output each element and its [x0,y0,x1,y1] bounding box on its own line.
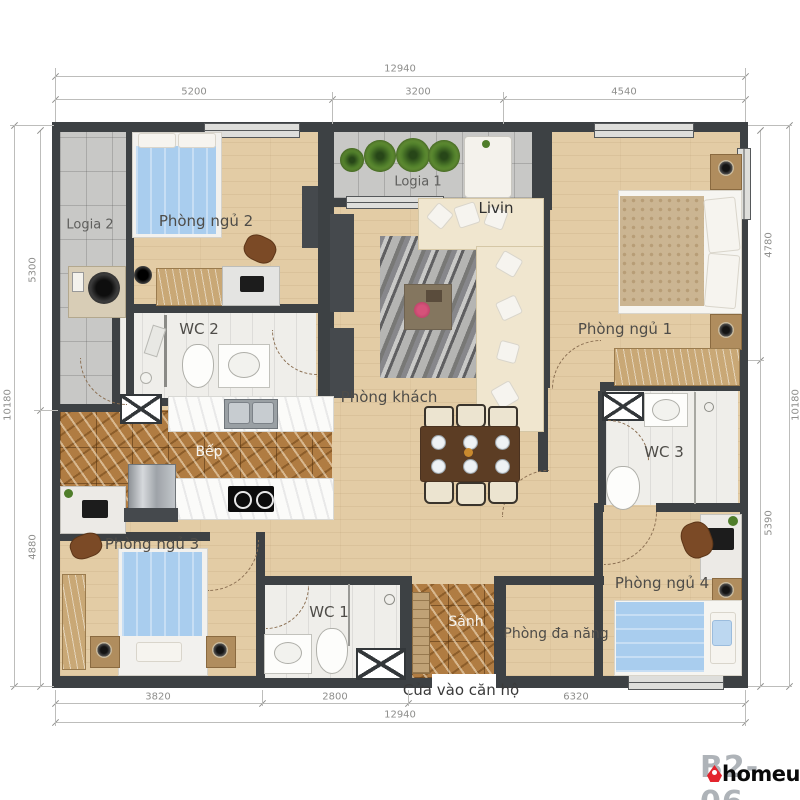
wall [594,503,604,512]
room-label-logia1: Logia 1 [394,175,441,190]
brand-name: homeup [722,762,800,786]
room-label-wc3: WC 3 [644,443,684,461]
floor-plan: Logia 2 Phòng ngủ 2 WC 2 Logia 1 Livin P… [0,0,800,800]
plate-icon [495,435,510,450]
tv-icon [330,214,354,312]
plant-icon [428,140,460,172]
dim-line [760,130,761,686]
dim-right-2: 5390 [764,508,775,537]
dim-line [55,99,745,100]
sink-bowl [228,352,260,378]
dim-top-2: 3200 [403,87,432,98]
flower-icon [414,302,430,318]
shower-icon [694,392,696,504]
room-label-living: Phòng khách [341,388,438,406]
dim-top-overall: 12940 [382,64,418,75]
lamp-icon [96,642,112,658]
dim-right-1: 4780 [764,230,775,259]
chair-icon [456,404,486,428]
wardrobe-icon [156,268,224,306]
pillow [712,620,732,646]
room-label-kitchen: Bếp [195,444,222,460]
dim-right-overall: 10180 [791,387,800,423]
pillow [703,196,740,253]
wall [594,512,603,680]
dim-left-2: 4880 [28,532,39,561]
burner-icon [234,491,252,509]
chair-icon [488,480,518,504]
wall [256,576,406,585]
dim-line [55,703,745,704]
dim-bottom-3: 6320 [561,692,590,703]
wall [656,503,740,512]
toilet-icon [316,628,348,674]
wardrobe-icon [62,574,86,670]
room-label-wc1: WC 1 [309,603,349,621]
burner-icon [256,491,274,509]
bed-duvet [122,552,202,636]
shaft-icon [356,648,406,680]
dim-line [55,722,745,723]
bed-duvet [616,602,704,672]
wardrobe-icon [614,348,740,386]
plate-icon [495,459,510,474]
brand-logo-dot [712,770,717,775]
shower-head-icon [704,402,714,412]
room-label-bedroom1: Phòng ngủ 1 [578,320,672,338]
plant-icon [364,140,396,172]
room-label-wc2: WC 2 [179,320,219,338]
room-label-hall: Sảnh [448,614,483,630]
plate-icon [431,459,446,474]
shower-head-icon [384,594,395,605]
plant-icon [64,489,73,498]
tray-icon [426,290,442,302]
laptop-icon [82,500,108,518]
detergent-bottle-icon [72,272,84,292]
washing-machine-icon [88,272,120,304]
entrance-label: Cửa vào căn hộ [403,681,519,699]
room-label-living-note: Livin [478,199,513,217]
tv-icon [124,508,178,522]
table-decor-icon [464,448,473,457]
toilet-icon [182,344,214,388]
pillow [178,133,216,148]
room-label-logia2: Logia 2 [66,218,113,233]
dim-left-overall: 10180 [3,387,14,423]
chair-icon [456,482,486,506]
sink-bowl [274,642,302,664]
plant-icon [396,138,430,172]
drain-icon [140,372,152,384]
plant-icon [728,516,738,526]
tv-icon [302,186,318,248]
dim-bottom-2: 2800 [320,692,349,703]
window-icon [594,123,694,138]
pillow [704,253,741,310]
dim-left-1: 5300 [28,255,39,284]
room-label-bedroom2: Phòng ngủ 2 [159,212,253,230]
speaker-icon [134,266,152,284]
chair-icon [424,480,454,504]
pillow [136,642,182,662]
laptop-icon [240,276,264,292]
plate-icon [463,459,478,474]
dim-bottom-1: 3820 [143,692,172,703]
sink-bowl [228,402,250,424]
sink-bowl [652,399,680,421]
dim-bottom-overall: 12940 [382,710,418,721]
plant-icon [340,148,364,172]
dim-line [55,76,745,77]
window-icon [628,675,724,690]
toilet-icon [606,466,640,510]
room-label-multipurpose: Phòng đa năng [503,626,608,642]
shower-icon [164,315,167,387]
plate-icon [431,435,446,450]
lamp-icon [718,582,734,598]
dim-top-3: 4540 [609,87,638,98]
pillow [138,133,176,148]
dim-top-1: 5200 [179,87,208,98]
room-label-bedroom3: Phòng ngủ 3 [105,535,199,553]
lamp-icon [718,160,734,176]
bed-duvet [620,196,704,306]
shoe-cabinet [412,592,430,674]
lamp-icon [718,322,734,338]
lamp-icon [212,642,228,658]
room-label-bedroom4: Phòng ngủ 4 [615,574,709,592]
wall [504,576,604,585]
plant-icon [482,140,490,148]
dim-line [14,125,15,686]
shaft-icon [602,392,644,421]
sink-bowl [252,402,274,424]
